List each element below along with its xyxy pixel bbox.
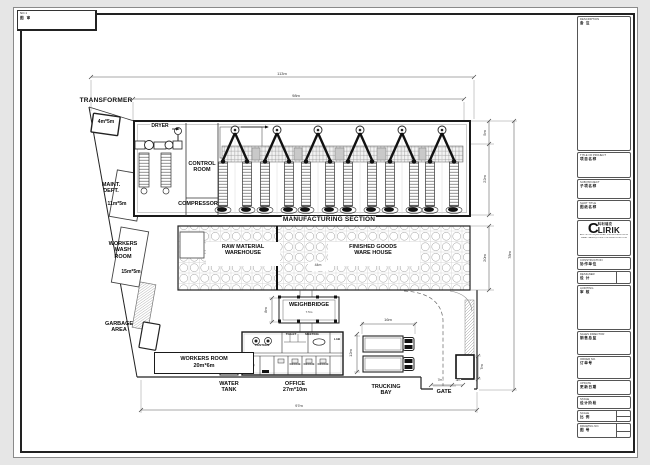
titleblock-drawing-no: DRAWING NO. 图 号 [577, 423, 631, 438]
trucking-bay-trucks [363, 336, 414, 372]
dim-113m: 113m [277, 72, 288, 76]
weighbridge-label: WEIGHBRIDGE [289, 302, 329, 308]
compressor-label: COMPRESSOR [178, 201, 218, 207]
title-block: DESCRIPTION 备 注 TITLE OF PROJECT 项目名称 SU… [577, 16, 631, 450]
wash-room-label: WORKERSWASHROOM [109, 241, 138, 260]
lab-label: LAB [334, 338, 340, 341]
dim-22m: 22m [483, 175, 487, 184]
stamp-chars: 图 审 [20, 16, 93, 21]
garbage-area-label: GARBAGEAREA [105, 321, 133, 334]
titleblock-designer: DESIGNER 设 计 [577, 271, 631, 284]
meeting-label: MEETING [305, 333, 319, 336]
canteen-label: CANTEEN [255, 344, 270, 347]
titleblock-auditing: AUDITING 审 核 [577, 285, 631, 330]
maint-dept-label: MAINT.DEPT. [102, 182, 120, 195]
dim-12m: 12m [349, 349, 353, 358]
titleblock-update: UPDATE 更新日期 [577, 380, 631, 395]
titleblock-logo: C 科利瑞克 LIRIK ADD: NO.19 FUQING ROAD, PUD… [577, 220, 631, 256]
site-plan-drawing [0, 0, 650, 465]
workers-room-box: WORKERS ROOM20m*6m [154, 352, 254, 374]
titleblock-sheet-title: SHOT TITLE 图纸名称 [577, 200, 631, 219]
maint-dept-size-label: 11m*5m [108, 202, 127, 208]
dim-8m: 8m [264, 307, 268, 314]
finished-goods-warehouse-label: FINISHED GOODSWARE HOUSE [348, 244, 398, 257]
gate-label: GATE [437, 389, 452, 395]
toilet-label: TOILET [286, 333, 297, 336]
dim-20m: 20m [483, 254, 487, 263]
transformer-size-label: 4m*5m [98, 120, 114, 126]
mill-rack [222, 146, 463, 162]
warehouse-strip [178, 226, 470, 290]
titleblock-description: DESCRIPTION 备 注 [577, 16, 631, 151]
dim-gate-3m: 3m [455, 379, 461, 383]
raw-material-warehouse-label: RAW MATERIALWAREHOUSE [221, 244, 265, 257]
manufacturing-section-label: MANUFACTURING SECTION [282, 216, 376, 224]
drawing-sheet-page: TRANSFORMER 4m*5m DRYER CONTROLROOM COMP… [0, 0, 650, 465]
titleblock-sub-project: SUB PROJECT 子项名称 [577, 179, 631, 199]
titleblock-construction: CONSTRUCTION 协作单位 [577, 257, 631, 270]
office-room-label: OFFICE [304, 363, 315, 366]
dim-16m: 16m [384, 318, 393, 322]
dim-44m: 44m [314, 264, 322, 268]
office-building [242, 332, 343, 375]
dryer-label: DRYER [150, 124, 169, 130]
control-room-label: CONTROLROOM [188, 161, 215, 174]
dim-gate-7m: 7m [437, 379, 443, 383]
guard-house [456, 355, 474, 379]
office-room-label: OFFICE [318, 363, 329, 366]
titleblock-sales-director: SALES DIRECTOR 销售总监 [577, 331, 631, 355]
titleblock-project: TITLE OF PROJECT 项目名称 [577, 152, 631, 178]
trucking-bay-label: TRUCKINGBAY [371, 384, 400, 397]
dim-78m: 78m [508, 251, 512, 260]
titleblock-order-no: ORDER NO. 订单号 [577, 356, 631, 379]
dim-98m: 98m [292, 94, 301, 98]
weighbridge-width-dim: 7.5m [305, 311, 313, 314]
dim-guard-7m: 7m [480, 364, 484, 371]
clirik-logo: C 科利瑞克 LIRIK [580, 223, 628, 234]
dim-5m: 5m [483, 130, 487, 137]
wash-room-size-label: 15m*5m [121, 270, 140, 276]
titleblock-scale: SCALE 比 例 [577, 410, 631, 422]
company-contact: EMAIL: SALES@CLIRIK.COM WWW.CLIRIK.COM [580, 237, 628, 240]
titleblock-stage: STAGE 设计阶段 [577, 396, 631, 409]
transformer-label: TRANSFORMER [80, 97, 133, 105]
water-tank-label: WATERTANK [219, 381, 238, 394]
office-room-label: OFFICE [290, 363, 301, 366]
approval-stamp: NO.1 图 审 [17, 10, 97, 31]
office-label: OFFICE27m*10m [283, 381, 307, 394]
garbage-area-box [132, 282, 160, 350]
dim-97m: 97m [295, 404, 304, 408]
